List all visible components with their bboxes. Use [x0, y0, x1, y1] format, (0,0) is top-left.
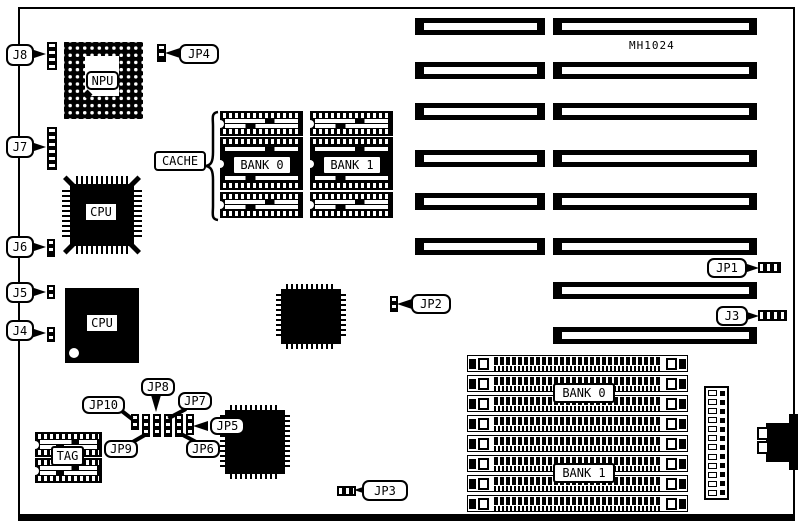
- isa-slot-right-6: [553, 238, 757, 255]
- simm-latch: [666, 458, 677, 470]
- isa-slot-right-7: [553, 282, 757, 299]
- controller-pins: [230, 405, 280, 410]
- label-j3: J3: [716, 306, 748, 326]
- dip-pins: [223, 194, 300, 199]
- dip-pins: [313, 183, 390, 188]
- simm-latch: [478, 498, 489, 510]
- dip-pins: [223, 211, 300, 216]
- simm-endcap: [469, 439, 476, 449]
- dip-pins: [313, 211, 390, 216]
- label-j6: J6: [6, 236, 34, 258]
- isa-slot-left-3: [415, 103, 545, 120]
- dip-notch-icon: [220, 120, 224, 128]
- cpu-pins: [134, 190, 142, 240]
- power-pin: [708, 454, 717, 460]
- dip-pins: [223, 139, 300, 144]
- power-pin: [708, 426, 717, 432]
- simm-pins: [494, 506, 661, 511]
- dip-body: [40, 440, 97, 444]
- power-pin-column: [708, 390, 719, 496]
- label-j5: J5: [6, 282, 34, 303]
- simm-endcap: [469, 459, 476, 469]
- simm-endcap: [679, 479, 686, 489]
- simm-endcap: [469, 419, 476, 429]
- dip-body: [40, 471, 97, 475]
- label-jp6: JP6: [186, 440, 220, 458]
- power-key-column: [720, 391, 725, 495]
- dip-body: [225, 205, 298, 209]
- simm-endcap: [679, 379, 686, 389]
- keyboard-connector-tab: [757, 441, 769, 454]
- isa-slot-right-3: [553, 103, 757, 120]
- cpu-corner: [63, 242, 75, 254]
- simm-latch: [478, 418, 489, 430]
- chipset-pins: [341, 294, 346, 339]
- isa-slot-left-2: [415, 62, 545, 79]
- chipset-pins: [286, 344, 336, 349]
- isa-slot-right-5: [553, 193, 757, 210]
- simm-pins: [494, 486, 661, 491]
- cpu2-label: CPU: [87, 315, 117, 331]
- simm-latch: [478, 458, 489, 470]
- power-pin: [708, 390, 717, 396]
- simm-pins: [494, 497, 661, 505]
- dip-pins: [38, 476, 99, 481]
- simm-pins: [494, 366, 661, 371]
- simm-pins: [494, 446, 661, 451]
- power-pin: [708, 463, 717, 469]
- dip-body: [315, 119, 388, 123]
- simm-latch: [478, 478, 489, 490]
- simm-latch: [666, 498, 677, 510]
- simm-endcap: [679, 499, 686, 509]
- simm-latch: [478, 438, 489, 450]
- dip-pins: [223, 129, 300, 134]
- label-jp10: JP10: [82, 396, 125, 414]
- keyboard-connector-tab: [757, 427, 769, 440]
- dip-notch-icon: [220, 160, 224, 168]
- simm-endcap: [679, 359, 686, 369]
- jumper-j4: [47, 327, 55, 342]
- chipset-chip: [276, 284, 346, 349]
- dip-body: [225, 147, 298, 151]
- simm-latch: [478, 398, 489, 410]
- jumper-j7: [47, 127, 57, 170]
- cpu-pins: [62, 190, 70, 240]
- jumper-j5: [47, 285, 55, 299]
- dip-pins: [313, 139, 390, 144]
- cache-bank0-label: BANK 0: [232, 155, 292, 175]
- power-pin: [708, 417, 717, 423]
- jumper-j3: [758, 310, 787, 321]
- simm-endcap: [469, 399, 476, 409]
- dip-pins: [313, 113, 390, 118]
- isa-slot-left-5: [415, 193, 545, 210]
- chipset-pins: [276, 294, 281, 339]
- simm-endcap: [679, 399, 686, 409]
- simm-socket-4: [467, 415, 688, 432]
- dip-notch-icon: [35, 467, 39, 475]
- label-jp3: JP3: [362, 480, 408, 501]
- cpu-pins: [76, 176, 128, 184]
- simm-pins: [494, 417, 661, 425]
- isa-slot-right-4: [553, 150, 757, 167]
- isa-slot-left-6: [415, 238, 545, 255]
- label-jp4: JP4: [179, 44, 219, 64]
- label-jp5: JP5: [210, 417, 245, 435]
- chipset-pins: [286, 284, 336, 289]
- label-jp8: JP8: [141, 378, 175, 396]
- dip-body: [225, 119, 298, 123]
- simm-bank1-label: BANK 1: [553, 463, 615, 483]
- simm-socket-5: [467, 435, 688, 452]
- dip-body: [315, 124, 388, 128]
- controller-pins: [230, 474, 280, 479]
- power-pin: [708, 408, 717, 414]
- dip-pins: [313, 194, 390, 199]
- cpu-corner: [129, 175, 141, 187]
- board-model-text: MH1024: [629, 39, 675, 52]
- simm-latch: [666, 358, 677, 370]
- dip-notch-icon: [310, 201, 314, 209]
- isa-slot-left-4: [415, 150, 545, 167]
- simm-endcap: [469, 379, 476, 389]
- jumper-jp1: [758, 262, 781, 273]
- cache-bank0-chip-3: [220, 192, 303, 218]
- simm-endcap: [469, 359, 476, 369]
- isa-slot-right-2: [553, 62, 757, 79]
- simm-endcap: [469, 479, 476, 489]
- simm-endcap: [469, 499, 476, 509]
- simm-pins: [494, 357, 661, 365]
- callout-tail-jp5: [193, 421, 208, 431]
- simm-latch: [478, 358, 489, 370]
- dip-body: [225, 124, 298, 128]
- label-jp2: JP2: [411, 294, 451, 314]
- cache-label: CACHE: [154, 151, 206, 171]
- dip-body: [315, 200, 388, 204]
- dip-pins: [223, 183, 300, 188]
- dip-body: [315, 147, 388, 151]
- dip-notch-icon: [310, 160, 314, 168]
- cpu2-pin1-dot-icon: [69, 348, 79, 358]
- label-j4: J4: [6, 320, 34, 341]
- cache-bank1-label: BANK 1: [322, 155, 382, 175]
- isa-slot-right-1: [553, 18, 757, 35]
- cpu-label: CPU: [86, 204, 116, 220]
- simm-bank0-label: BANK 0: [553, 383, 615, 403]
- power-pin: [708, 399, 717, 405]
- simm-latch: [666, 438, 677, 450]
- dip-body: [225, 200, 298, 204]
- simm-pins: [494, 437, 661, 445]
- dip-pins: [223, 113, 300, 118]
- isa-slot-left-1: [415, 18, 545, 35]
- cache-bank1-chip-1: [310, 111, 393, 136]
- dip-notch-icon: [35, 441, 39, 449]
- label-jp7: JP7: [178, 392, 212, 410]
- chipset-chip-body: [281, 289, 341, 344]
- simm-endcap: [679, 459, 686, 469]
- simm-pins: [494, 406, 661, 411]
- power-connector: [704, 386, 729, 500]
- dip-pins: [38, 434, 99, 439]
- cache-bank1-chip-3: [310, 192, 393, 218]
- label-jp1: JP1: [707, 258, 747, 278]
- simm-latch: [478, 378, 489, 390]
- label-jp9: JP9: [104, 440, 138, 458]
- power-pin: [708, 435, 717, 441]
- cpu-corner: [63, 175, 75, 187]
- dip-body: [40, 466, 97, 470]
- dip-notch-icon: [310, 120, 314, 128]
- dip-pins: [313, 129, 390, 134]
- jumper-jp8: [153, 414, 161, 437]
- motherboard-diagram: MH1024 NPU CPU CPU CACHE: [0, 0, 802, 527]
- callout-tail-jp8: [151, 395, 161, 412]
- power-pin: [708, 481, 717, 487]
- power-pin: [708, 444, 717, 450]
- dip-notch-icon: [220, 201, 224, 209]
- simm-endcap: [679, 439, 686, 449]
- simm-socket-8: [467, 495, 688, 512]
- simm-latch: [666, 398, 677, 410]
- tag-label: TAG: [51, 446, 84, 466]
- power-pin: [708, 472, 717, 478]
- callout-tail-jp2: [397, 299, 412, 309]
- controller-pins: [285, 415, 290, 469]
- dip-body: [225, 176, 298, 180]
- keyboard-connector-edge: [789, 414, 798, 470]
- cpu-corner: [129, 242, 141, 254]
- dip-body: [315, 205, 388, 209]
- simm-latch: [666, 478, 677, 490]
- cache-bank0-chip-1: [220, 111, 303, 136]
- cpu-pins: [76, 246, 128, 254]
- dip-body: [315, 176, 388, 180]
- simm-pins: [494, 426, 661, 431]
- label-j8: J8: [6, 44, 34, 66]
- label-j7: J7: [6, 136, 34, 158]
- jumper-j8: [47, 42, 57, 70]
- simm-endcap: [679, 419, 686, 429]
- simm-latch: [666, 418, 677, 430]
- simm-socket-1: [467, 355, 688, 372]
- callout-tail-jp4: [165, 48, 180, 58]
- simm-latch: [666, 378, 677, 390]
- isa-slot-right-8: [553, 327, 757, 344]
- power-pin: [708, 490, 717, 496]
- npu-label: NPU: [86, 71, 119, 90]
- jumper-j6: [47, 239, 55, 257]
